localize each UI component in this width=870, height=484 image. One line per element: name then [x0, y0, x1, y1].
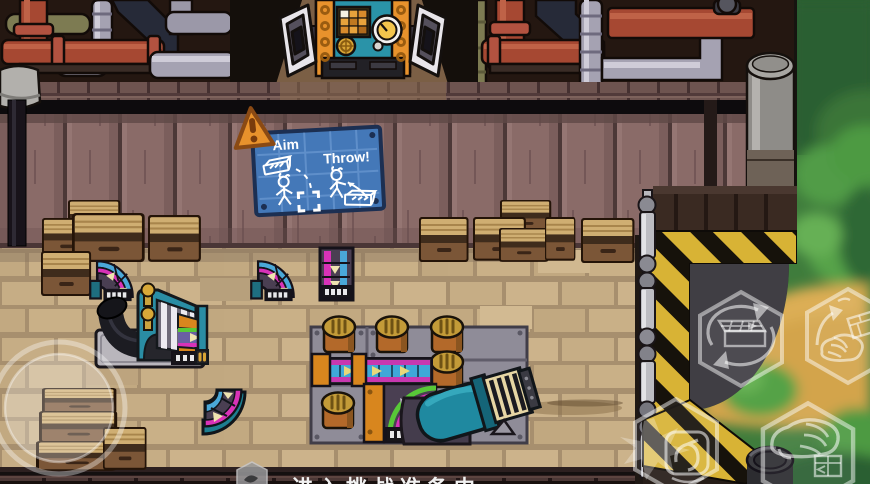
svg-text:Throw!: Throw!: [323, 148, 370, 166]
svg-text:Aim: Aim: [272, 136, 299, 153]
svg-text:进入挑战准备中: 进入挑战准备中: [292, 476, 481, 484]
